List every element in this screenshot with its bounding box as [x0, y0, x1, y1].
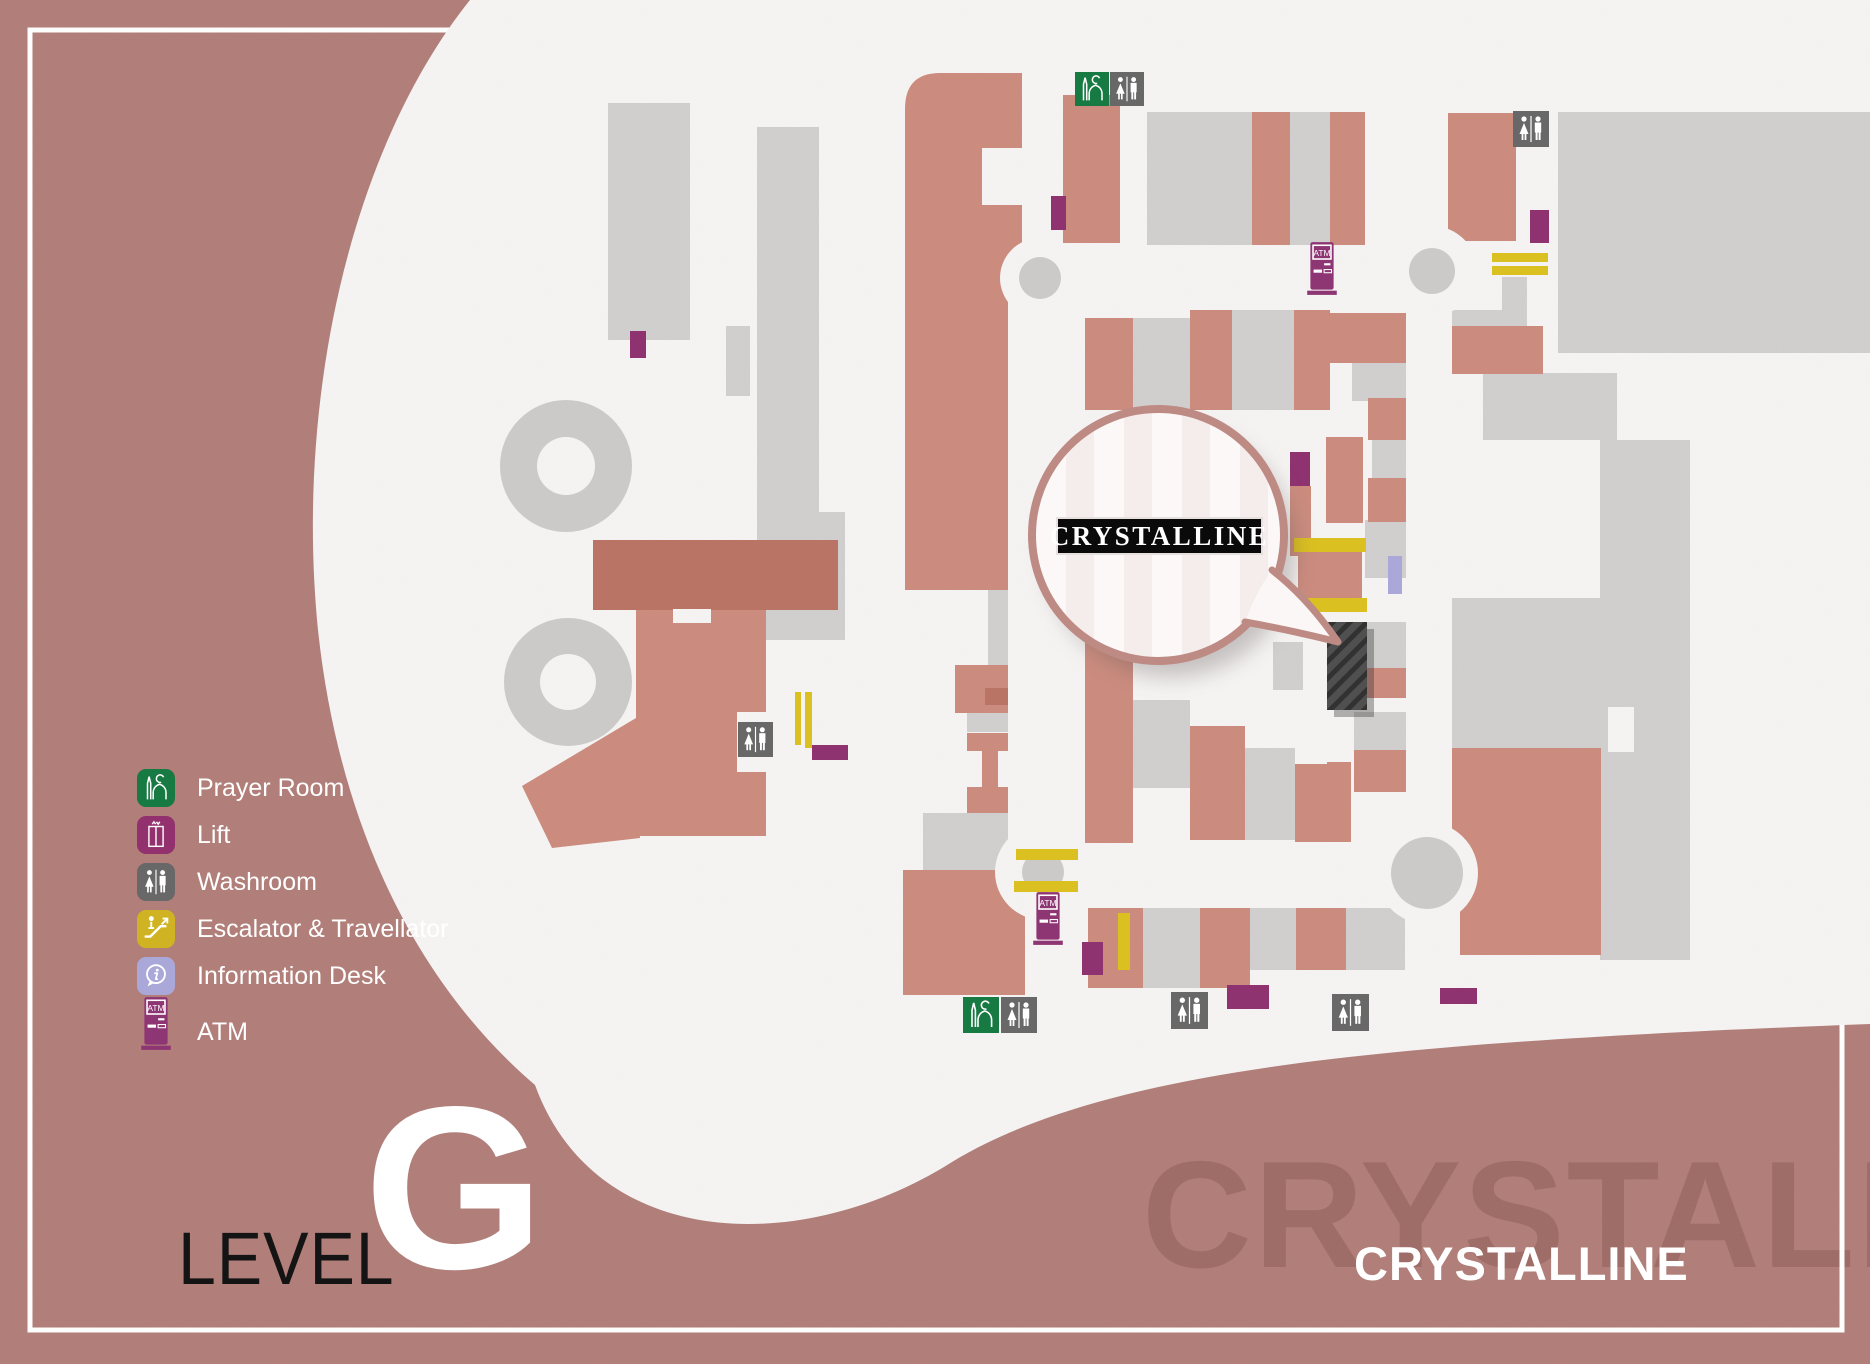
legend-label: Lift [197, 821, 230, 850]
washroom-icon [137, 863, 175, 901]
washroom-icon [1513, 111, 1549, 147]
legend-item-prayer-room: Prayer Room [137, 769, 449, 807]
atm-icon: ATM [1303, 240, 1341, 297]
legend: Prayer Room Lift Washroom [137, 769, 449, 1062]
prayer-room-icon [963, 997, 999, 1033]
prayer-room-icon [137, 769, 175, 807]
legend-item-washroom: Washroom [137, 863, 449, 901]
lift-icon [137, 816, 175, 854]
atm-icon: ATM [137, 1004, 175, 1042]
legend-label: ATM [197, 1018, 248, 1047]
legend-item-escalator: Escalator & Travellator [137, 910, 449, 948]
svg-text:ATM: ATM [1039, 898, 1056, 908]
level-word: LEVEL [178, 1216, 395, 1301]
level-letter: G [364, 1094, 544, 1284]
store-logo[interactable]: CRYSTALLINE [1056, 517, 1263, 555]
mall-directory-screen: CRYSTALLINE [0, 0, 1870, 1364]
washroom-icon [1001, 997, 1037, 1033]
footer-store-name: CRYSTALLINE [1354, 1236, 1689, 1291]
escalator-icon [137, 910, 175, 948]
svg-text:ATM: ATM [1313, 248, 1330, 258]
atm-icon: ATM [1029, 890, 1067, 947]
svg-text:ATM: ATM [147, 1002, 164, 1012]
legend-item-information-desk: Information Desk [137, 957, 449, 995]
legend-label: Escalator & Travellator [197, 915, 449, 944]
legend-label: Information Desk [197, 962, 386, 991]
washroom-icon [1332, 994, 1369, 1031]
washroom-icon [1110, 72, 1144, 106]
information-desk-icon [137, 957, 175, 995]
legend-item-lift: Lift [137, 816, 449, 854]
washroom-icon [738, 722, 773, 757]
legend-item-atm: ATM ATM [137, 1004, 449, 1062]
floor-map [0, 0, 1870, 1364]
legend-label: Prayer Room [197, 774, 344, 803]
washroom-icon [1171, 992, 1208, 1029]
grain-overlay [0, 0, 1870, 1364]
legend-label: Washroom [197, 868, 317, 897]
prayer-room-icon [1075, 72, 1109, 106]
store-callout-tail [1225, 550, 1355, 660]
